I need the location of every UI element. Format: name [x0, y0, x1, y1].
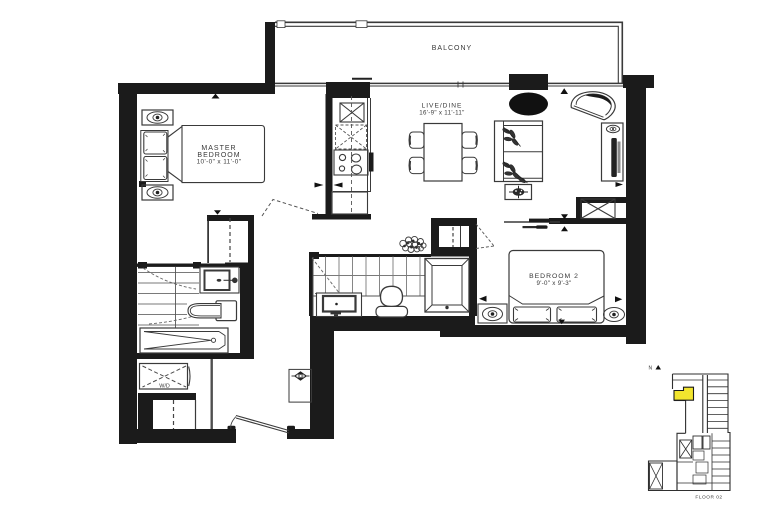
svg-text:9'-0" x 9'-3": 9'-0" x 9'-3"	[536, 280, 571, 287]
svg-text:W/D: W/D	[159, 384, 170, 390]
svg-text:N: N	[649, 366, 653, 372]
svg-text:BEDROOM 2: BEDROOM 2	[529, 273, 579, 280]
svg-text:LIVE/DINE: LIVE/DINE	[422, 103, 463, 110]
svg-text:16'-9" x 11'-11": 16'-9" x 11'-11"	[419, 110, 464, 117]
svg-text:FLOOR 02: FLOOR 02	[695, 495, 722, 501]
svg-text:BALCONY: BALCONY	[432, 45, 472, 52]
svg-text:10'-0" x 11'-0": 10'-0" x 11'-0"	[197, 159, 242, 166]
svg-text:MASTER: MASTER	[201, 145, 236, 152]
